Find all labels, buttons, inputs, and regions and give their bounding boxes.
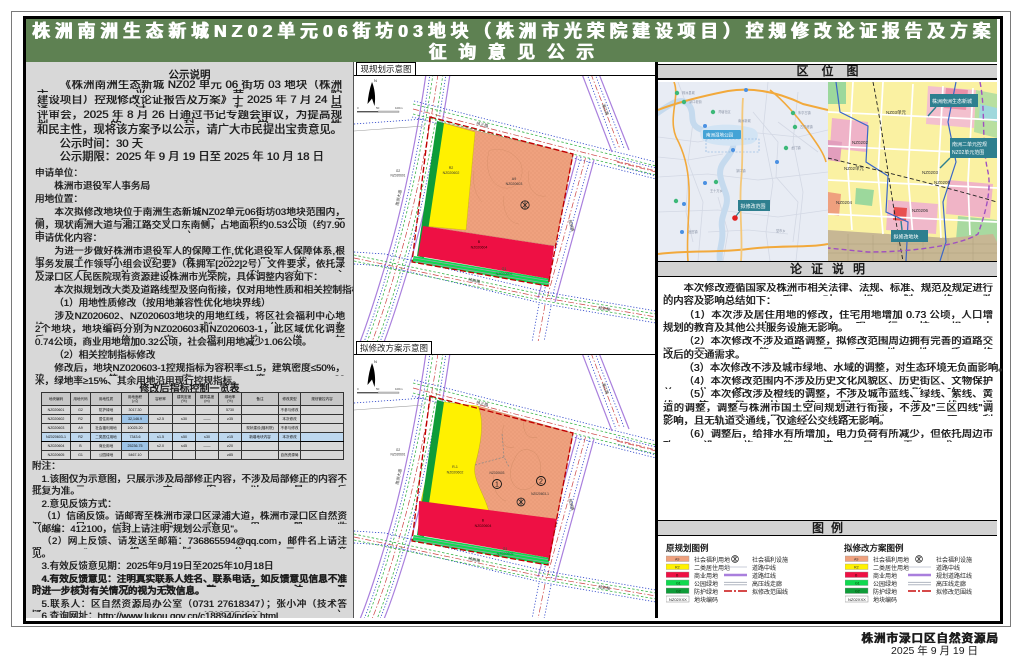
svg-text:纬四路: 纬四路 (468, 555, 481, 563)
svg-text:G2: G2 (676, 590, 681, 594)
svg-text:南洲新城: 南洲新城 (738, 118, 752, 123)
svg-text:公园绿地: 公园绿地 (873, 580, 897, 588)
svg-text:商业用地: 商业用地 (694, 572, 718, 580)
svg-text:A9: A9 (854, 558, 858, 562)
svg-text:规划道路红线: 规划道路红线 (936, 572, 972, 580)
svg-text:高压线走廊: 高压线走廊 (752, 580, 782, 588)
svg-text:NZ02XXX: NZ02XXX (669, 597, 687, 602)
svg-text:地块编码: 地块编码 (694, 596, 718, 604)
svg-text:R-1: R-1 (452, 465, 458, 469)
svg-text:G1: G1 (676, 582, 681, 586)
svg-text:二类居住用地: 二类居住用地 (694, 564, 730, 572)
svg-text:道路中线: 道路中线 (752, 564, 776, 572)
svg-text:1: 1 (495, 482, 499, 489)
svg-text:NZ02单元范围: NZ02单元范围 (952, 149, 984, 156)
svg-text:0: 0 (357, 106, 359, 110)
svg-text:NZ020602: NZ020602 (447, 471, 464, 475)
svg-text:NZ020604: NZ020604 (471, 246, 488, 250)
svg-text:社会福利设施: 社会福利设施 (936, 556, 972, 564)
svg-text:二类居住用地: 二类居住用地 (873, 564, 909, 572)
svg-text:经五路: 经五路 (598, 304, 611, 312)
svg-text:龙门镇: 龙门镇 (791, 145, 801, 150)
svg-text:经五路: 经五路 (598, 583, 611, 591)
svg-text:A9: A9 (512, 177, 516, 181)
svg-text:纬三路: 纬三路 (476, 120, 489, 129)
svg-text:NZ02XXX: NZ02XXX (848, 597, 866, 602)
svg-text:道路中线: 道路中线 (936, 564, 960, 572)
svg-text:NZ020601: NZ020601 (391, 174, 406, 178)
svg-text:G2: G2 (855, 590, 860, 594)
svg-text:G1: G1 (503, 547, 508, 551)
svg-text:NZ020605: NZ020605 (497, 552, 514, 556)
svg-text:NZ0202: NZ0202 (852, 140, 869, 145)
svg-text:社会福利设施: 社会福利设施 (752, 556, 788, 564)
svg-text:地块编码: 地块编码 (873, 596, 897, 604)
svg-text:淦田镇: 淦田镇 (688, 229, 698, 234)
svg-text:南洲二单元控规: 南洲二单元控规 (952, 141, 987, 148)
svg-text:拟修改地块: 拟修改地块 (894, 234, 919, 241)
svg-text:R2: R2 (854, 566, 859, 570)
svg-text:G1: G1 (855, 582, 860, 586)
svg-text:防护绿地: 防护绿地 (873, 588, 897, 596)
svg-text:NZ020605: NZ020605 (496, 272, 513, 276)
svg-text:G2: G2 (396, 448, 400, 452)
svg-text:朱亭古镇: 朱亭古镇 (798, 110, 812, 115)
svg-text:N: N (374, 78, 377, 83)
svg-text:NZ020603: NZ020603 (506, 182, 523, 186)
svg-text:高压线走廊: 高压线走廊 (936, 580, 966, 588)
svg-text:NZ020601: NZ020601 (391, 453, 406, 457)
svg-text:NZ020603-1: NZ020603-1 (531, 492, 549, 496)
svg-text:王十万乡: 王十万乡 (710, 188, 723, 193)
svg-text:拟修改范围: 拟修改范围 (741, 203, 766, 210)
svg-text:N: N (374, 359, 377, 364)
svg-text:NZ020602: NZ020602 (443, 171, 460, 175)
svg-text:NZ0205: NZ0205 (934, 180, 951, 185)
svg-text:100m: 100m (395, 387, 403, 391)
svg-text:社会福利用地: 社会福利用地 (873, 556, 909, 564)
svg-text:公园绿地: 公园绿地 (694, 580, 718, 588)
svg-text:堂市乡: 堂市乡 (776, 228, 786, 233)
svg-text:NZ0206: NZ0206 (912, 208, 929, 213)
svg-text:拟修改范围线: 拟修改范围线 (752, 588, 788, 596)
svg-text:渌口镇: 渌口镇 (736, 168, 746, 173)
svg-text:2: 2 (539, 479, 543, 486)
svg-text:50: 50 (376, 387, 380, 391)
svg-text:商业用地: 商业用地 (873, 572, 897, 580)
svg-text:100m: 100m (395, 106, 403, 110)
svg-text:50: 50 (376, 106, 380, 110)
svg-text:NZ0203: NZ0203 (922, 170, 939, 175)
svg-text:A9: A9 (675, 558, 679, 562)
svg-text:G2: G2 (396, 169, 400, 173)
svg-text:湾塘社区: 湾塘社区 (718, 109, 732, 114)
svg-text:NZ0204: NZ0204 (836, 200, 853, 205)
svg-text:R2: R2 (449, 166, 454, 170)
svg-text:NZ02单元: NZ02单元 (844, 165, 865, 172)
svg-text:道路红线: 道路红线 (752, 572, 776, 580)
svg-text:渌口老街: 渌口老街 (689, 99, 703, 104)
svg-text:株洲县城: 株洲县城 (682, 90, 696, 95)
svg-text:古岳峰镇: 古岳峰镇 (800, 124, 814, 129)
svg-text:NZ020604: NZ020604 (475, 524, 492, 528)
svg-text:G1: G1 (502, 267, 507, 271)
svg-text:R2: R2 (675, 566, 680, 570)
svg-text:株洲南洲生态新城: 株洲南洲生态新城 (932, 98, 972, 105)
svg-text:社会福利用地: 社会福利用地 (694, 556, 730, 564)
svg-text:0: 0 (357, 387, 359, 391)
svg-text:NZ020603: NZ020603 (490, 471, 505, 475)
svg-text:规划路: 规划路 (567, 498, 576, 511)
svg-text:拟修改范围线: 拟修改范围线 (936, 588, 972, 596)
svg-text:NZ03单元: NZ03单元 (886, 109, 907, 116)
svg-text:纬四路: 纬四路 (468, 276, 481, 284)
svg-text:规划路: 规划路 (567, 219, 576, 232)
svg-text:防护绿地: 防护绿地 (694, 588, 718, 596)
svg-text:南洲湿地公园: 南洲湿地公园 (706, 132, 733, 139)
